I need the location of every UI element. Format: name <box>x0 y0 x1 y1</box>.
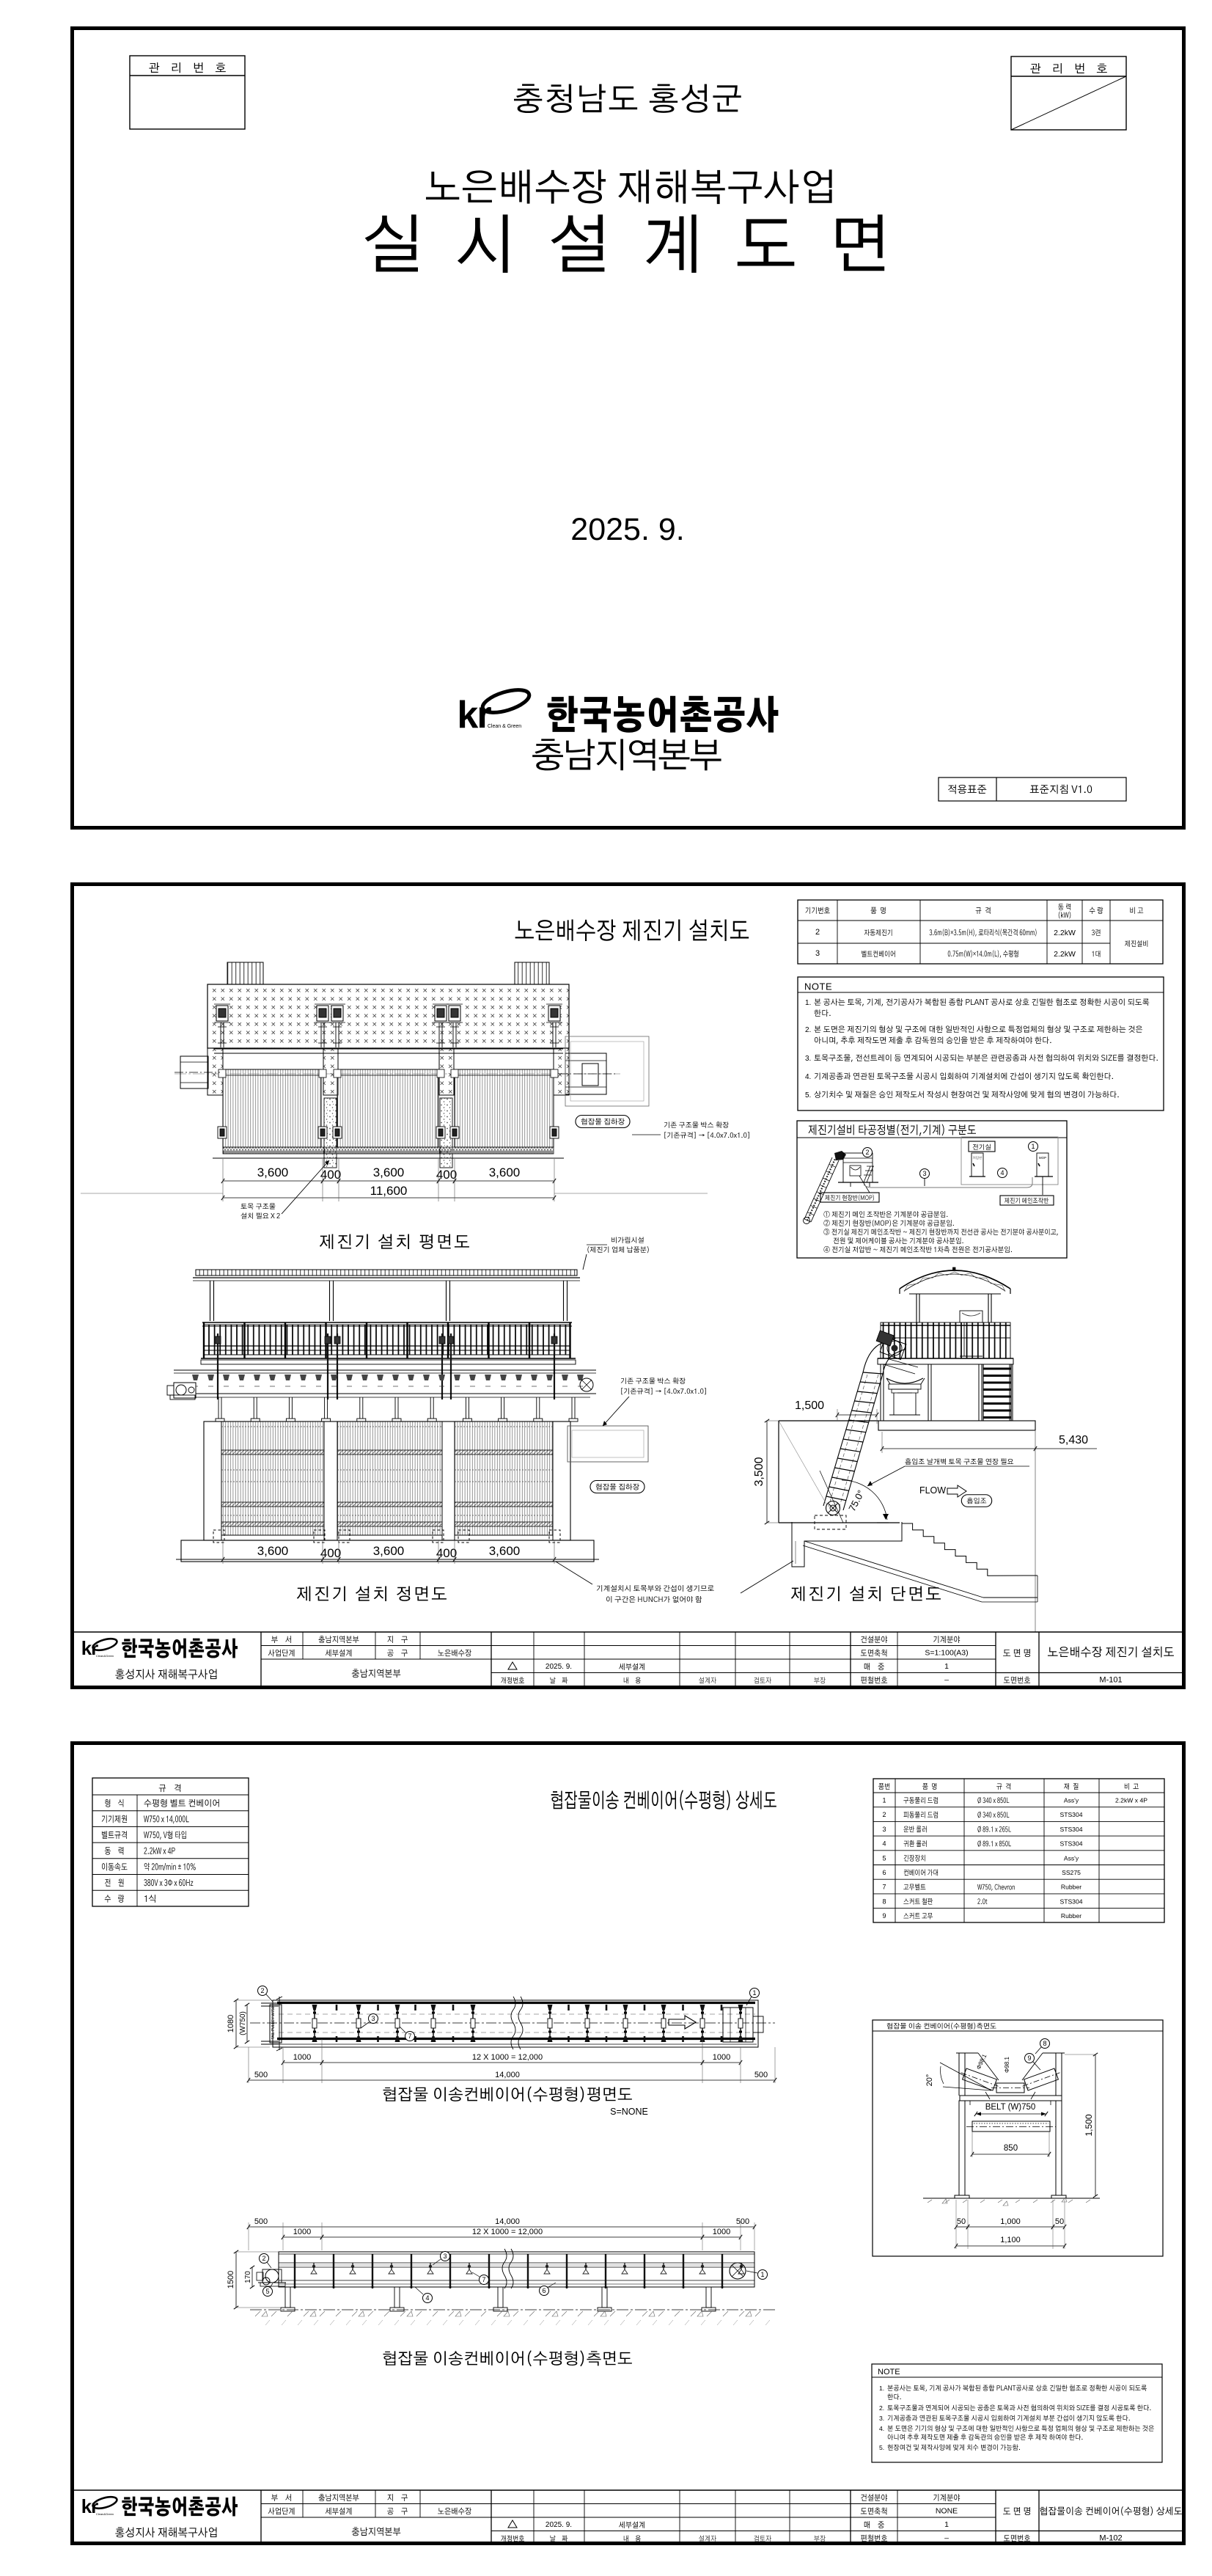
svg-text:3: 3 <box>371 2015 375 2022</box>
svg-text:3.: 3. <box>879 2415 884 2422</box>
svg-text:3: 3 <box>922 1170 926 1177</box>
svg-text:STS304: STS304 <box>1059 1811 1082 1818</box>
svg-text:850: 850 <box>1004 2144 1018 2153</box>
svg-text:3,600: 3,600 <box>257 1544 289 1558</box>
svg-text:MOP: MOP <box>1039 1156 1046 1160</box>
svg-text:5.: 5. <box>879 2444 884 2451</box>
svg-text:1: 1 <box>944 1662 949 1671</box>
svg-text:M-102: M-102 <box>1099 2534 1122 2543</box>
svg-text:1,500: 1,500 <box>1084 2114 1094 2136</box>
svg-text:1,500: 1,500 <box>795 1399 824 1412</box>
svg-text:1000: 1000 <box>713 2228 730 2236</box>
svg-text:2: 2 <box>262 2255 265 2262</box>
svg-text:3,600: 3,600 <box>489 1544 521 1558</box>
svg-text:STS304: STS304 <box>1059 1840 1082 1848</box>
svg-text:3.: 3. <box>805 1055 811 1063</box>
svg-text:Rubber: Rubber <box>1061 1884 1081 1891</box>
svg-text:4: 4 <box>425 2294 429 2302</box>
svg-text:M-101: M-101 <box>1099 1676 1122 1685</box>
svg-text:2.: 2. <box>879 2404 884 2412</box>
svg-text:3,600: 3,600 <box>373 1166 405 1179</box>
svg-text:FLOW: FLOW <box>919 1485 946 1496</box>
svg-text:50: 50 <box>1055 2217 1064 2226</box>
svg-text:6: 6 <box>542 2287 546 2294</box>
svg-text:3,600: 3,600 <box>489 1166 521 1179</box>
svg-text:2025. 9.: 2025. 9. <box>546 2521 572 2529</box>
svg-text:–: – <box>944 1676 949 1685</box>
svg-text:8: 8 <box>882 1898 886 1905</box>
svg-text:3,500: 3,500 <box>753 1457 765 1486</box>
svg-text:(W750): (W750) <box>239 2011 247 2035</box>
svg-text:11,600: 11,600 <box>370 1184 408 1198</box>
svg-text:2: 2 <box>882 1811 886 1818</box>
svg-text:2: 2 <box>815 928 820 937</box>
svg-text:1.: 1. <box>805 999 811 1007</box>
svg-text:8: 8 <box>1043 2040 1046 2047</box>
svg-text:NOTE: NOTE <box>804 981 832 992</box>
svg-text:500: 500 <box>254 2071 268 2079</box>
svg-text:TAIL PULLEY W750: TAIL PULLEY W750 <box>271 2006 276 2039</box>
svg-text:NONE: NONE <box>936 2507 958 2516</box>
svg-text:2: 2 <box>865 1149 869 1156</box>
svg-text:400: 400 <box>436 1168 457 1182</box>
svg-text:9: 9 <box>1027 2054 1031 2062</box>
svg-text:3: 3 <box>443 2253 447 2260</box>
svg-text:7: 7 <box>882 1884 886 1891</box>
svg-text:–: – <box>944 2534 949 2543</box>
svg-text:3: 3 <box>815 949 820 958</box>
svg-text:7: 7 <box>408 2032 411 2040</box>
svg-text:400: 400 <box>320 1168 341 1182</box>
svg-text:400: 400 <box>320 1546 341 1560</box>
svg-text:75.0°: 75.0° <box>846 1488 867 1513</box>
svg-text:NOTE: NOTE <box>878 2368 900 2376</box>
svg-text:500: 500 <box>254 2217 268 2226</box>
svg-text:Ass'y: Ass'y <box>1064 1797 1079 1804</box>
svg-text:50: 50 <box>957 2217 966 2226</box>
svg-text:6: 6 <box>882 1869 886 1876</box>
svg-text:Clean & Green: Clean & Green <box>488 724 521 729</box>
svg-text:1000: 1000 <box>713 2053 730 2062</box>
svg-text:12 X 1000 = 12,000: 12 X 1000 = 12,000 <box>472 2053 543 2062</box>
svg-text:BELT (W)750: BELT (W)750 <box>985 2103 1036 2112</box>
svg-text:4: 4 <box>1000 1169 1004 1177</box>
svg-text:Clean&Green: Clean&Green <box>96 1654 114 1658</box>
svg-text:2.2kW x 4P: 2.2kW x 4P <box>1115 1797 1147 1804</box>
svg-text:12 X 1000 = 12,000: 12 X 1000 = 12,000 <box>472 2228 543 2236</box>
svg-text:Φ98.1: Φ98.1 <box>1004 2056 1010 2073</box>
svg-text:7: 7 <box>482 2276 485 2283</box>
svg-text:5: 5 <box>882 1854 886 1862</box>
svg-text:1000: 1000 <box>293 2228 311 2236</box>
svg-text:SS275: SS275 <box>1062 1869 1081 1876</box>
svg-text:Ass'y: Ass'y <box>1064 1854 1079 1862</box>
svg-text:2: 2 <box>260 1987 264 1994</box>
svg-text:1,000: 1,000 <box>1000 2217 1021 2226</box>
svg-text:5,430: 5,430 <box>1059 1434 1088 1446</box>
svg-text:2.2kW: 2.2kW <box>1054 929 1076 937</box>
svg-text:3,600: 3,600 <box>257 1166 289 1179</box>
svg-text:1,100: 1,100 <box>1000 2236 1021 2244</box>
svg-text:2.2kW: 2.2kW <box>1054 950 1076 959</box>
svg-text:1080: 1080 <box>227 2015 235 2032</box>
svg-text:1: 1 <box>1031 1143 1035 1150</box>
svg-text:STS304: STS304 <box>1059 1826 1082 1833</box>
svg-text:5.: 5. <box>805 1091 811 1099</box>
svg-text:3,600: 3,600 <box>373 1544 405 1558</box>
svg-text:4: 4 <box>882 1840 886 1848</box>
svg-text:4.: 4. <box>805 1073 811 1081</box>
svg-text:400: 400 <box>436 1546 457 1560</box>
svg-text:1: 1 <box>752 1989 756 1997</box>
svg-text:Φ98.1: Φ98.1 <box>975 2053 988 2071</box>
svg-text:2.: 2. <box>805 1026 811 1034</box>
svg-text:STS304: STS304 <box>1059 1898 1082 1905</box>
svg-text:20°: 20° <box>925 2074 934 2087</box>
svg-text:Rubber: Rubber <box>1061 1912 1081 1920</box>
svg-text:500: 500 <box>736 2217 749 2226</box>
svg-text:S=NONE: S=NONE <box>610 2107 648 2117</box>
svg-text:1500: 1500 <box>227 2271 235 2288</box>
svg-text:9: 9 <box>882 1912 886 1920</box>
svg-text:500: 500 <box>754 2071 768 2079</box>
svg-text:2025. 9.: 2025. 9. <box>546 1663 572 1671</box>
svg-text:1: 1 <box>760 2271 764 2278</box>
svg-text:14,000: 14,000 <box>495 2071 520 2079</box>
svg-text:1.: 1. <box>879 2385 884 2392</box>
svg-text:S=1:100(A3): S=1:100(A3) <box>925 1649 968 1658</box>
svg-text:1: 1 <box>944 2520 949 2529</box>
svg-text:2025. 9.: 2025. 9. <box>570 512 684 547</box>
svg-text:1: 1 <box>882 1797 886 1804</box>
svg-text:5: 5 <box>265 2288 269 2295</box>
svg-text:3: 3 <box>882 1826 886 1833</box>
svg-text:4.: 4. <box>879 2425 884 2432</box>
svg-text:Clean&Green: Clean&Green <box>96 2512 114 2516</box>
svg-text:170: 170 <box>244 2271 252 2283</box>
svg-text:14,000: 14,000 <box>495 2217 520 2226</box>
svg-text:1000: 1000 <box>293 2053 311 2062</box>
